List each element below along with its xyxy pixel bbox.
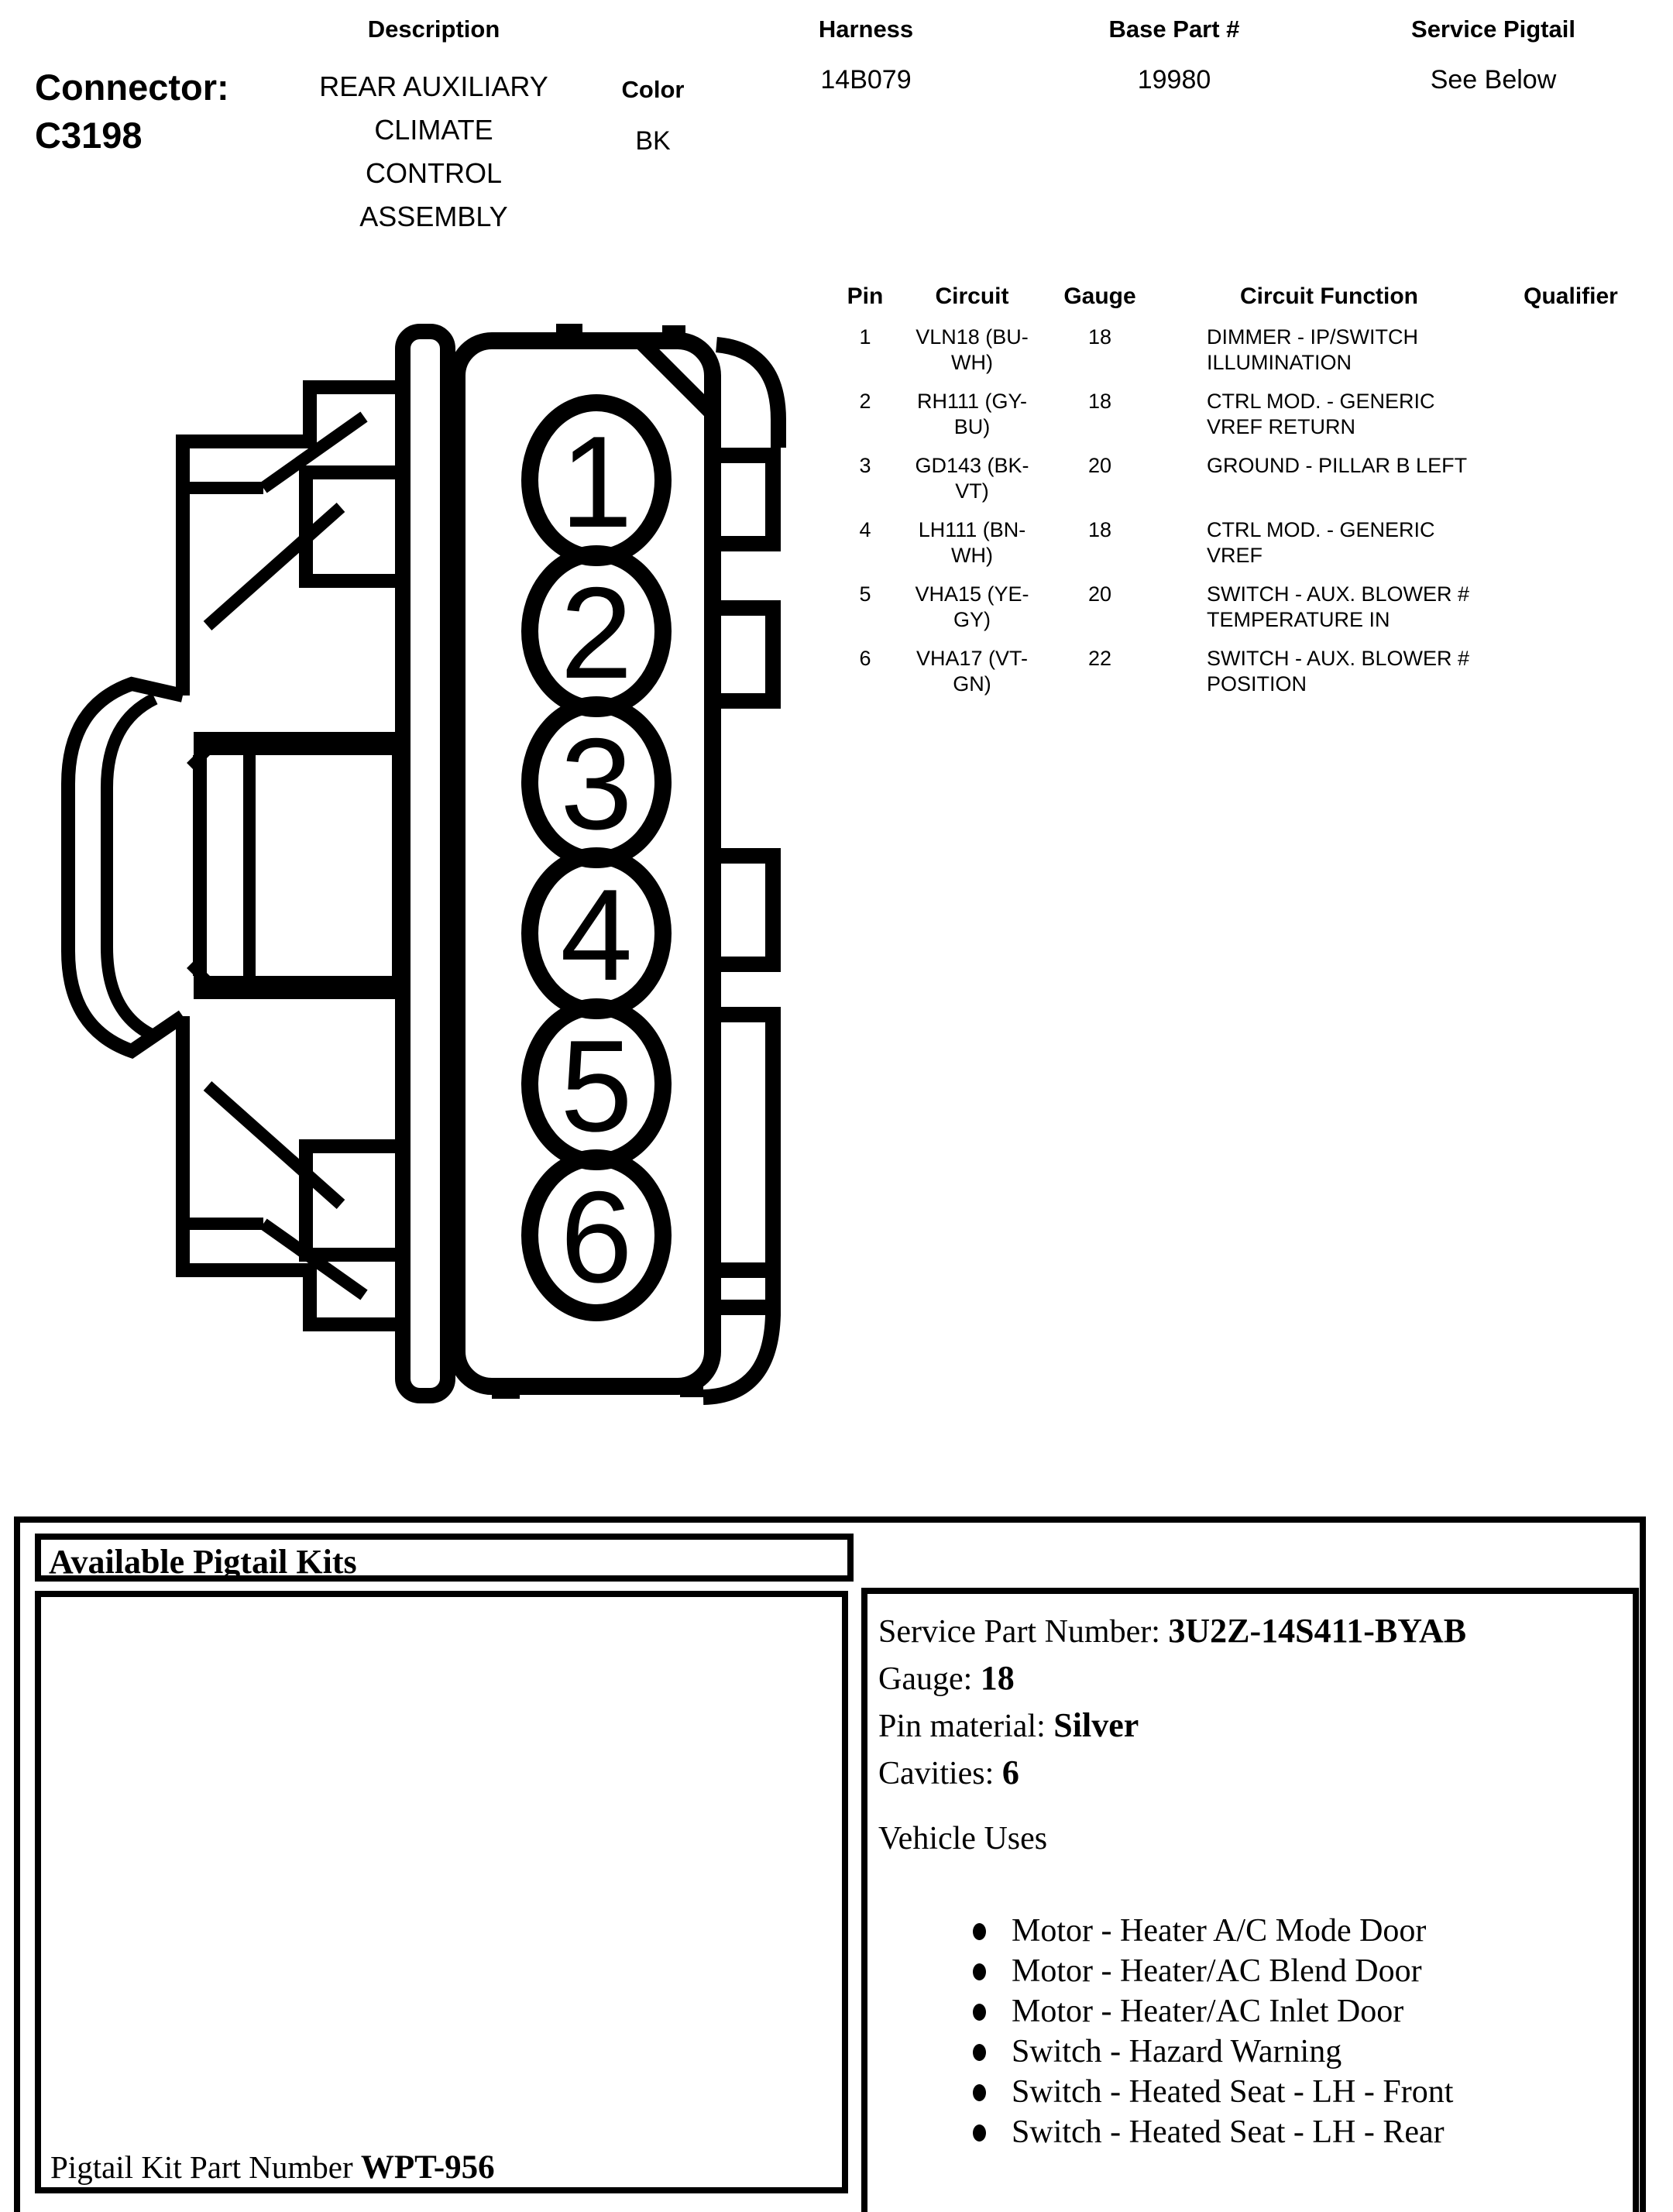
body-nub <box>492 1380 520 1399</box>
vehicle-use-item: Switch - Heated Seat - LH - Rear <box>878 2112 1633 2152</box>
vehicle-use-item: Switch - Heated Seat - LH - Front <box>878 2072 1633 2112</box>
latch-top-bar <box>194 732 405 755</box>
pin-cell: 2 <box>842 389 888 414</box>
pin-table-header-circuit: Circuit <box>902 283 1042 310</box>
service-part-value: 3U2Z-14S411-BYAB <box>1168 1612 1466 1650</box>
circuit-line: WH) <box>902 350 1042 376</box>
circuit-line: GY) <box>902 607 1042 633</box>
circuit-line: VHA15 (YE- <box>902 582 1042 607</box>
lower-window <box>306 1146 403 1255</box>
description-line: CONTROL <box>275 152 593 195</box>
base-part-value: 19980 <box>1070 65 1279 95</box>
pin-number: 3 <box>560 711 632 857</box>
circuit-line: BU) <box>902 414 1042 440</box>
function-cell: CTRL MOD. - GENERICVREF RETURN <box>1207 389 1501 440</box>
circuit-line: VT) <box>902 479 1042 504</box>
function-cell: CTRL MOD. - GENERICVREF <box>1207 517 1501 568</box>
function-cell: SWITCH - AUX. BLOWER #TEMPERATURE IN <box>1207 582 1501 633</box>
pigtail-kit-box: Pigtail Kit Part Number WPT-956 <box>35 1591 848 2193</box>
function-cell: GROUND - PILLAR B LEFT <box>1207 453 1501 479</box>
bullet-icon <box>973 1963 986 1980</box>
cavities-value: 6 <box>1002 1753 1019 1791</box>
top-hook <box>716 345 778 448</box>
gauge-cell: 20 <box>1053 582 1146 607</box>
function-cell: DIMMER - IP/SWITCHILLUMINATION <box>1207 325 1501 376</box>
description-line: ASSEMBLY <box>275 195 593 239</box>
function-line: DIMMER - IP/SWITCH <box>1207 325 1501 350</box>
function-line: TEMPERATURE IN <box>1207 607 1501 633</box>
pigtail-kit-value: WPT-956 <box>361 2149 495 2186</box>
circuit-cell: VHA17 (VT-GN) <box>902 646 1042 697</box>
description-column-header: Description <box>275 15 593 43</box>
vehicle-use-text: Switch - Heated Seat - LH - Front <box>1012 2074 1453 2110</box>
connector-diagram: 1 2 3 4 5 6 <box>39 302 821 1410</box>
description-line: CLIMATE <box>275 108 593 152</box>
circuit-line: LH111 (BN- <box>902 517 1042 543</box>
function-line: SWITCH - AUX. BLOWER # <box>1207 646 1501 671</box>
side-tab <box>714 856 773 964</box>
lower-bracket <box>183 1016 403 1324</box>
body-nub <box>662 325 685 342</box>
circuit-cell: VLN18 (BU-WH) <box>902 325 1042 376</box>
pin-material-value: Silver <box>1053 1706 1139 1744</box>
pin-number: 4 <box>560 862 632 1008</box>
gauge-value: 18 <box>981 1659 1015 1697</box>
function-line: GROUND - PILLAR B LEFT <box>1207 453 1501 479</box>
base-part-column-header: Base Part # <box>1070 15 1279 43</box>
gauge-cell: 18 <box>1053 517 1146 543</box>
gauge-cell: 18 <box>1053 325 1146 350</box>
body-nub <box>680 1379 703 1397</box>
upper-bracket <box>183 387 403 696</box>
circuit-cell: GD143 (BK-VT) <box>902 453 1042 504</box>
color-value: BK <box>603 126 703 156</box>
circuit-cell: RH111 (GY-BU) <box>902 389 1042 440</box>
function-line: VREF RETURN <box>1207 414 1501 440</box>
function-cell: SWITCH - AUX. BLOWER #POSITION <box>1207 646 1501 697</box>
description-line: REAR AUXILIARY <box>275 65 593 108</box>
connector-id: C3198 <box>35 112 298 160</box>
service-pigtail-value: See Below <box>1377 65 1609 95</box>
circuit-line: VHA17 (VT- <box>902 646 1042 671</box>
pin-material-line: Pin material: Silver <box>878 1702 1633 1750</box>
bullet-icon <box>973 2004 986 2021</box>
bullet-icon <box>973 1923 986 1940</box>
vehicle-uses-list: Motor - Heater A/C Mode Door Motor - Hea… <box>878 1911 1633 2152</box>
function-line: POSITION <box>1207 671 1501 697</box>
pin-material-label: Pin material: <box>878 1709 1046 1744</box>
pin-cell: 5 <box>842 582 888 607</box>
function-line: CTRL MOD. - GENERIC <box>1207 517 1501 543</box>
vehicle-use-text: Motor - Heater/AC Blend Door <box>1012 1953 1422 1989</box>
cavities-line: Cavities: 6 <box>878 1750 1633 1797</box>
pin-cell: 4 <box>842 517 888 543</box>
bullet-icon <box>973 2084 986 2101</box>
vehicle-use-text: Motor - Heater/AC Inlet Door <box>1012 1994 1403 2029</box>
vehicle-use-text: Motor - Heater A/C Mode Door <box>1012 1913 1426 1949</box>
service-part-box: Service Part Number: 3U2Z-14S411-BYAB Ga… <box>861 1588 1639 2212</box>
gauge-cell: 18 <box>1053 389 1146 414</box>
pigtail-kit-part-number-line: Pigtail Kit Part Number WPT-956 <box>50 2148 495 2186</box>
function-line: CTRL MOD. - GENERIC <box>1207 389 1501 414</box>
circuit-cell: VHA15 (YE-GY) <box>902 582 1042 633</box>
side-tab <box>714 608 773 701</box>
bullet-icon <box>973 2044 986 2061</box>
gauge-label: Gauge: <box>878 1661 972 1697</box>
body-nub <box>556 324 582 342</box>
gauge-line: Gauge: 18 <box>878 1655 1633 1702</box>
connector-label: Connector: <box>35 64 298 112</box>
function-line: SWITCH - AUX. BLOWER # <box>1207 582 1501 607</box>
vehicle-use-item: Switch - Hazard Warning <box>878 2032 1633 2072</box>
pin-number: 2 <box>560 560 632 706</box>
pin-cell: 1 <box>842 325 888 350</box>
pin-cell: 3 <box>842 453 888 479</box>
pin-number: 6 <box>560 1164 632 1310</box>
vehicle-use-text: Switch - Heated Seat - LH - Rear <box>1012 2114 1445 2150</box>
vehicle-use-item: Motor - Heater/AC Inlet Door <box>878 1991 1633 2032</box>
function-line: VREF <box>1207 543 1501 568</box>
harness-value: 14B079 <box>788 65 943 95</box>
pin-number: 5 <box>560 1013 632 1159</box>
side-tab <box>714 1015 773 1270</box>
available-pigtail-kits-header: Available Pigtail Kits <box>35 1534 854 1582</box>
vehicle-use-text: Switch - Hazard Warning <box>1012 2034 1341 2069</box>
pigtail-kit-label: Pigtail Kit Part Number <box>50 2149 353 2185</box>
circuit-line: VLN18 (BU- <box>902 325 1042 350</box>
latch-bottom-bar <box>194 976 405 999</box>
bullet-icon <box>973 2124 986 2142</box>
circuit-cell: LH111 (BN-WH) <box>902 517 1042 568</box>
circuit-line: GD143 (BK- <box>902 453 1042 479</box>
pin-table-header-gauge: Gauge <box>1053 283 1146 310</box>
harness-column-header: Harness <box>788 15 943 43</box>
gauge-cell: 22 <box>1053 646 1146 671</box>
service-part-number-line: Service Part Number: 3U2Z-14S411-BYAB <box>878 1608 1633 1655</box>
circuit-line: WH) <box>902 543 1042 568</box>
circuit-line: GN) <box>902 671 1042 697</box>
service-part-label: Service Part Number: <box>878 1614 1160 1650</box>
pin-cell: 6 <box>842 646 888 671</box>
connector-document-page: Connector: C3198 Description REAR AUXILI… <box>0 0 1673 2212</box>
vehicle-use-item: Motor - Heater A/C Mode Door <box>878 1911 1633 1951</box>
service-pigtail-column-header: Service Pigtail <box>1377 15 1609 43</box>
pin-number: 1 <box>560 409 632 555</box>
connector-title: Connector: C3198 <box>35 64 298 160</box>
color-column-header: Color <box>603 76 703 104</box>
pin-table-header-pin: Pin <box>842 283 888 310</box>
left-bump <box>68 684 183 1051</box>
vehicle-use-item: Motor - Heater/AC Blend Door <box>878 1951 1633 1991</box>
pin-table-header-function: Circuit Function <box>1205 283 1453 310</box>
cavities-label: Cavities: <box>878 1756 994 1791</box>
function-line: ILLUMINATION <box>1207 350 1501 376</box>
side-tab <box>714 455 773 544</box>
description-value: REAR AUXILIARY CLIMATE CONTROL ASSEMBLY <box>275 65 593 239</box>
vehicle-uses-title: Vehicle Uses <box>878 1815 1633 1862</box>
gauge-cell: 20 <box>1053 453 1146 479</box>
pin-table-header-qualifier: Qualifier <box>1501 283 1640 310</box>
circuit-line: RH111 (GY- <box>902 389 1042 414</box>
